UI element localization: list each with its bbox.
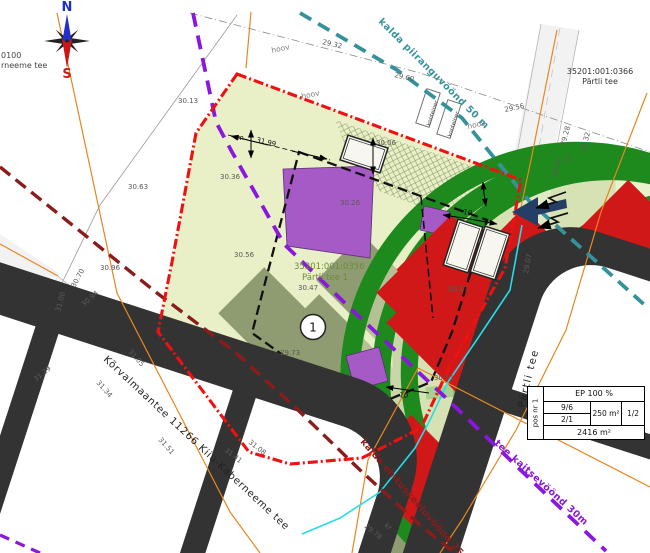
- compass-s-label: S: [62, 67, 71, 82]
- yard-label: hoov: [301, 88, 321, 101]
- elevation-label: 30.96: [100, 264, 121, 272]
- elevation-label: 30.63: [128, 183, 148, 191]
- elevation-label: 29.32: [322, 38, 343, 50]
- building-large: [283, 166, 374, 258]
- elevation-label: 30.56: [234, 251, 255, 259]
- table-pos-label: pos nr 1: [532, 399, 540, 428]
- north-needle: [62, 14, 72, 43]
- south-needle: [62, 39, 72, 68]
- elevation-label: 30.26: [340, 199, 361, 207]
- site-plan-canvas: konteiner konteiner: [0, 0, 650, 553]
- site-plan-svg: konteiner konteiner: [0, 0, 650, 553]
- elevation-label: 30.17: [448, 285, 468, 293]
- table-total-area: 2416 m²: [544, 425, 644, 439]
- elevation-label: 30.70: [70, 267, 86, 288]
- elevation-label: 29.73: [280, 349, 300, 357]
- compass-rose: N S: [44, 0, 90, 82]
- elevation-label: 30.06: [376, 139, 397, 147]
- table-cell-ratio: 1/2: [622, 402, 644, 425]
- compass-n-label: N: [62, 0, 73, 15]
- dimension-label: m: [237, 134, 244, 142]
- table-cell-b: 2/1: [544, 414, 590, 425]
- elevation-label: 29.56: [504, 102, 526, 114]
- neighbor-parcel-name: Pärtli tee: [582, 77, 618, 86]
- table-cell-area: 250 m²: [591, 402, 622, 425]
- elevation-label: 30.13: [178, 97, 198, 105]
- position-marker-number: 1: [309, 321, 317, 335]
- dimension-label: 10: [463, 208, 473, 217]
- position-marker: 1: [301, 315, 326, 340]
- corner-parcel-name: rneeme tee: [1, 61, 47, 70]
- yard-label: hoov: [271, 42, 291, 55]
- neighbor-parcel-code: 35201:001:0366: [567, 67, 633, 76]
- site-parcel-code: 35201:001:0356: [294, 262, 365, 272]
- elevation-label: 29.60: [394, 71, 415, 83]
- site-parcel-name: Pärtli tee 1: [302, 273, 348, 283]
- building-rights-table: pos nr 1 EP 100 % 9/6 2/1 250 m² 1/2 241…: [527, 386, 645, 440]
- elevation-label: 30.51: [434, 374, 454, 382]
- table-pos-cell: pos nr 1: [528, 387, 544, 439]
- table-ep-cell: EP 100 %: [544, 387, 644, 402]
- dimension-label: 10: [399, 391, 409, 400]
- elevation-label: 30.36: [220, 173, 241, 181]
- elevation-label: 30.47: [298, 284, 318, 292]
- corner-parcel-code: 0100: [1, 51, 21, 60]
- table-cell-a: 9/6: [544, 402, 590, 414]
